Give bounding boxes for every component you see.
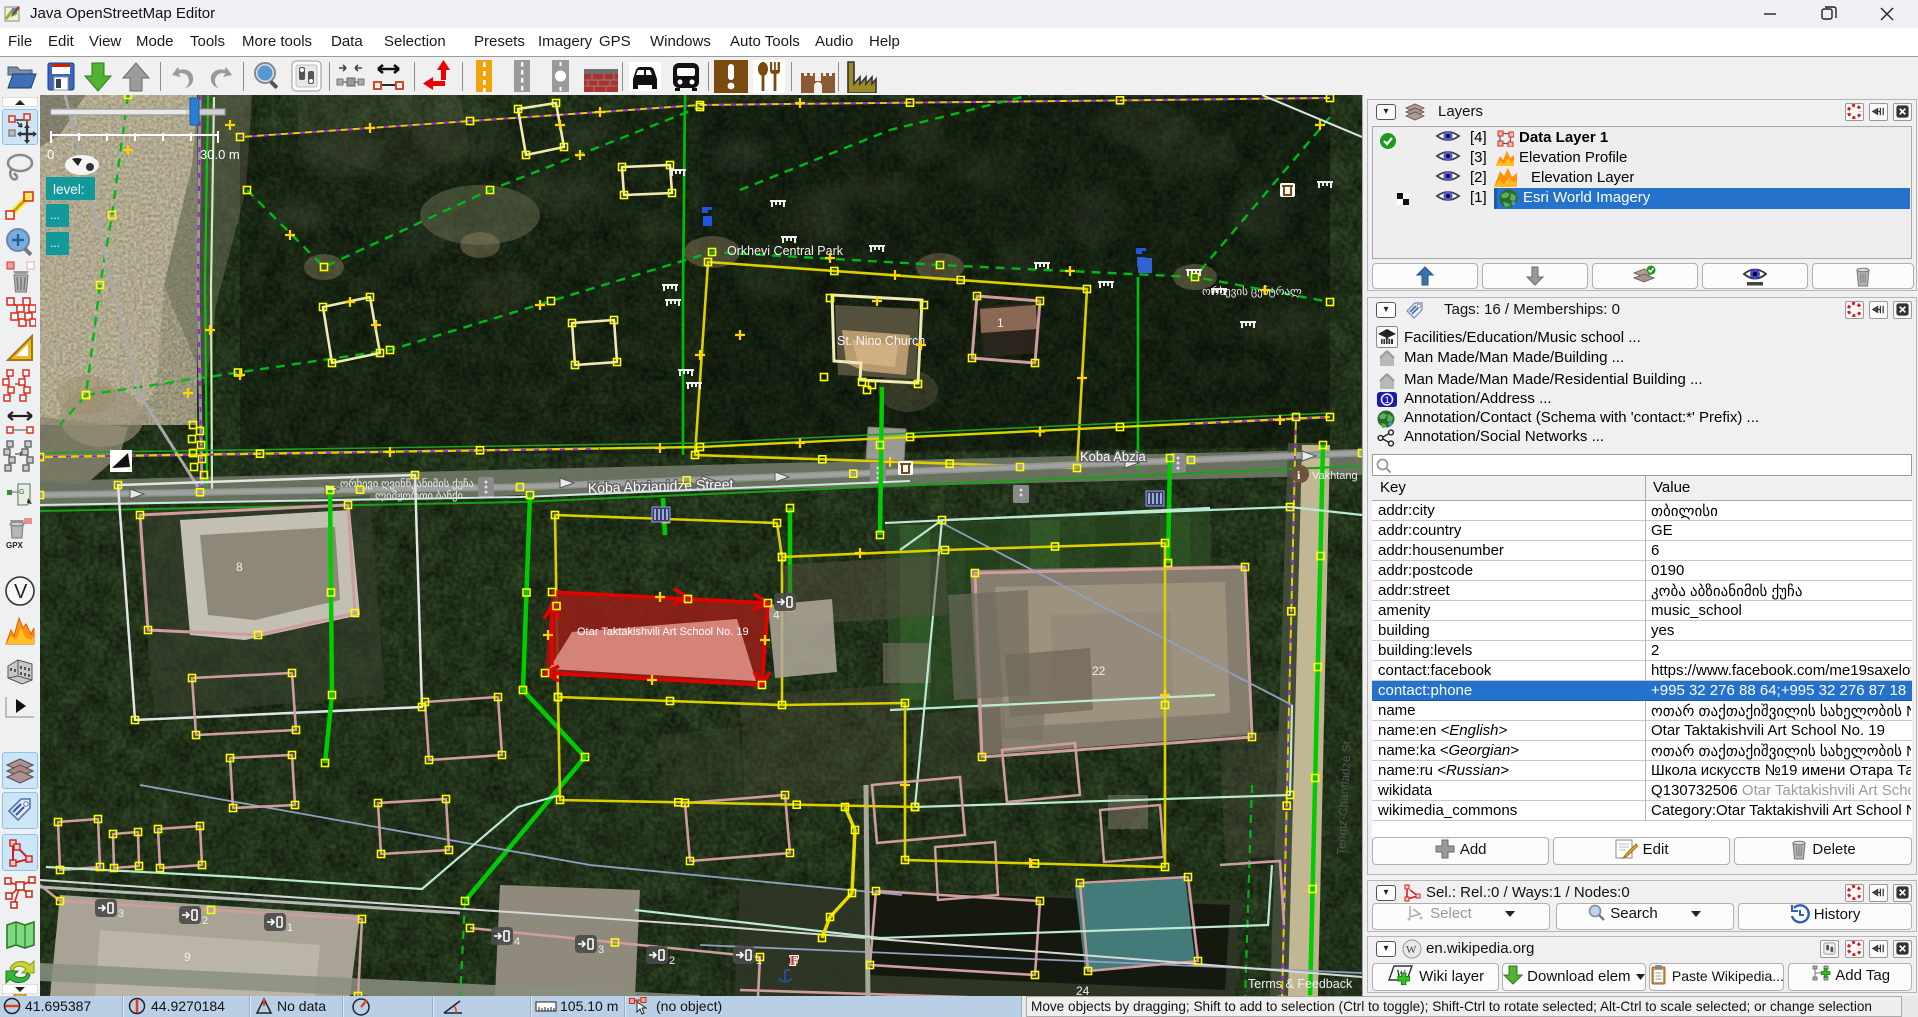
svg-text:24: 24 (1076, 984, 1090, 996)
svg-text:...: ... (50, 236, 60, 250)
svg-text:1: 1 (997, 316, 1004, 330)
svg-text:0: 0 (47, 147, 54, 162)
svg-text:Koba Abzia: Koba Abzia (1080, 449, 1147, 464)
svg-text:8: 8 (236, 560, 243, 574)
svg-text:...: ... (50, 208, 60, 222)
svg-text:1: 1 (287, 922, 293, 934)
svg-text:3: 3 (598, 944, 604, 956)
svg-text:Vakhtang: Vakhtang (1312, 470, 1358, 482)
svg-text:22: 22 (1092, 664, 1106, 678)
svg-text:1: 1 (756, 955, 762, 967)
svg-text:30.0 m: 30.0 m (200, 147, 240, 162)
svg-text:2: 2 (669, 955, 675, 967)
svg-text:St. Nino Church: St. Nino Church (837, 334, 925, 348)
svg-text:3: 3 (118, 908, 124, 920)
svg-text:F: F (790, 954, 799, 969)
svg-text:ორხევი ღვინწკანიმის ქუჩა: ორხევი ღვინწკანიმის ქუჩა (340, 477, 474, 490)
svg-text:2: 2 (202, 915, 208, 927)
svg-text:Terms & Feedback: Terms & Feedback (1248, 977, 1353, 991)
svg-text:level:: level: (53, 182, 85, 197)
svg-text:9: 9 (184, 950, 191, 964)
svg-text:W: W (1406, 944, 1417, 956)
svg-text:1: 1 (1385, 395, 1390, 405)
svg-text:V: V (14, 581, 28, 603)
svg-text:Orkhevi Central Park: Orkhevi Central Park (727, 244, 844, 258)
svg-text:4: 4 (514, 936, 520, 948)
svg-text:GPX: GPX (6, 541, 24, 550)
svg-text:Otar Taktakishvili Art School: Otar Taktakishvili Art School No. 19 (577, 626, 749, 638)
svg-text:G: G (19, 489, 24, 496)
